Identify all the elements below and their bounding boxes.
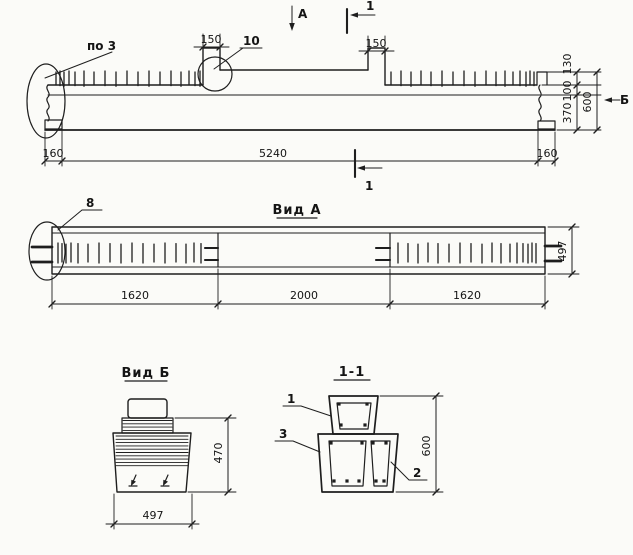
dim-1620-left-label: 1620 xyxy=(121,289,149,302)
view-a-group: Вид А 8 497 1620 2000 1620 xyxy=(29,196,579,309)
section-mark-top-arrow-head xyxy=(350,12,358,17)
stirrup-ticks-left xyxy=(56,71,200,86)
dim-370-label: 370 xyxy=(561,103,574,124)
detail-ellipse-left-end xyxy=(27,64,65,138)
dim-130-label: 130 xyxy=(561,54,574,75)
dim-600-label-section: 600 xyxy=(420,436,433,457)
view-b-470-ext xyxy=(175,418,236,492)
stirrup-ticks-right xyxy=(391,71,534,86)
dim-497-label-view-b: 497 xyxy=(143,509,164,522)
drawing-sheet: по 3 10 150 150 А 1 1 130 100 370 600 xyxy=(0,0,633,555)
rebar-dot xyxy=(332,479,335,482)
rebar-dot xyxy=(371,441,374,444)
view-b-mark-right-head xyxy=(163,480,168,486)
view-a-arrow-label: А xyxy=(298,7,308,21)
view-a-stirrups-right xyxy=(398,243,536,263)
dimension-slash-ticks xyxy=(42,44,600,527)
section-right-stirrup xyxy=(371,441,390,486)
rebar-dot xyxy=(360,441,363,444)
section-mark-bottom-label: 1 xyxy=(365,179,373,193)
section-mark-bottom-arrow-head xyxy=(357,165,365,170)
callout-8-label: 8 xyxy=(86,196,94,210)
callout-10-label: 10 xyxy=(243,34,260,48)
dim-2000-label: 2000 xyxy=(290,289,318,302)
dim-5240-label: 5240 xyxy=(259,147,287,160)
pos-3-label: 3 xyxy=(279,427,287,441)
dim-497-label-view-a: 497 xyxy=(556,241,569,262)
rebar-dot xyxy=(363,423,366,426)
section-top-rib xyxy=(329,396,378,434)
dim-150-right-label: 150 xyxy=(366,37,387,50)
beam-right-break-edge xyxy=(539,85,541,121)
dim-600-label: 600 xyxy=(581,92,594,113)
pos-1-label: 1 xyxy=(287,392,295,406)
section-mark-top-label: 1 xyxy=(366,0,374,13)
dim-160-left-label: 160 xyxy=(43,147,64,160)
rebar-dot xyxy=(339,423,342,426)
protruding-bars-left xyxy=(32,247,52,262)
view-a-divider-left-bars xyxy=(205,248,218,260)
view-b-arrow-head xyxy=(604,97,612,102)
rebar-dot xyxy=(329,441,332,444)
section-title: 1-1 xyxy=(339,365,366,380)
view-a-divider-right-bars xyxy=(376,248,390,260)
dim-150-left-label: 150 xyxy=(201,33,222,46)
rebar-dot xyxy=(365,402,368,405)
view-a-stirrups-left xyxy=(58,243,201,263)
section-1-1-group: 1-1 1 3 2 600 xyxy=(275,365,443,492)
view-a-arrow-head xyxy=(289,23,295,31)
view-b-title: Вид Б xyxy=(122,366,171,381)
view-b-hatch xyxy=(116,421,188,466)
pos-2-leader xyxy=(391,462,427,480)
rebar-dot xyxy=(374,479,377,482)
technical-drawing: по 3 10 150 150 А 1 1 130 100 370 600 xyxy=(0,0,633,555)
elevation-view-group: по 3 10 150 150 А 1 1 130 100 370 600 xyxy=(27,0,629,193)
rebar-dot xyxy=(382,479,385,482)
pos-1-leader xyxy=(283,406,331,416)
dim-1620-right-label: 1620 xyxy=(453,289,481,302)
view-a-title: Вид А xyxy=(272,203,321,218)
rebar-dot xyxy=(357,479,360,482)
section-left-stirrup xyxy=(329,441,366,486)
pos-3-leader xyxy=(275,441,320,452)
view-b-group: Вид Б 470 497 xyxy=(106,366,236,529)
pos-2-label: 2 xyxy=(413,466,421,480)
rebar-dot xyxy=(345,479,348,482)
view-b-top-block xyxy=(128,399,167,418)
detail-ellipse-view-a xyxy=(29,222,65,280)
dim-160-right-label: 160 xyxy=(537,147,558,160)
view-b-arrow-label: Б xyxy=(620,93,629,107)
dim-100-label: 100 xyxy=(561,81,574,102)
beam-left-break-edge xyxy=(47,85,49,121)
beam-end-lug-right xyxy=(537,72,547,85)
rebar-dot xyxy=(337,402,340,405)
dim-470-label: 470 xyxy=(212,443,225,464)
rebar-dot xyxy=(384,441,387,444)
callout-po3-leader xyxy=(45,52,112,78)
callout-po3-label: по 3 xyxy=(87,39,116,53)
view-b-mark-left-head xyxy=(131,480,136,486)
embedded-plate-right xyxy=(538,121,555,129)
